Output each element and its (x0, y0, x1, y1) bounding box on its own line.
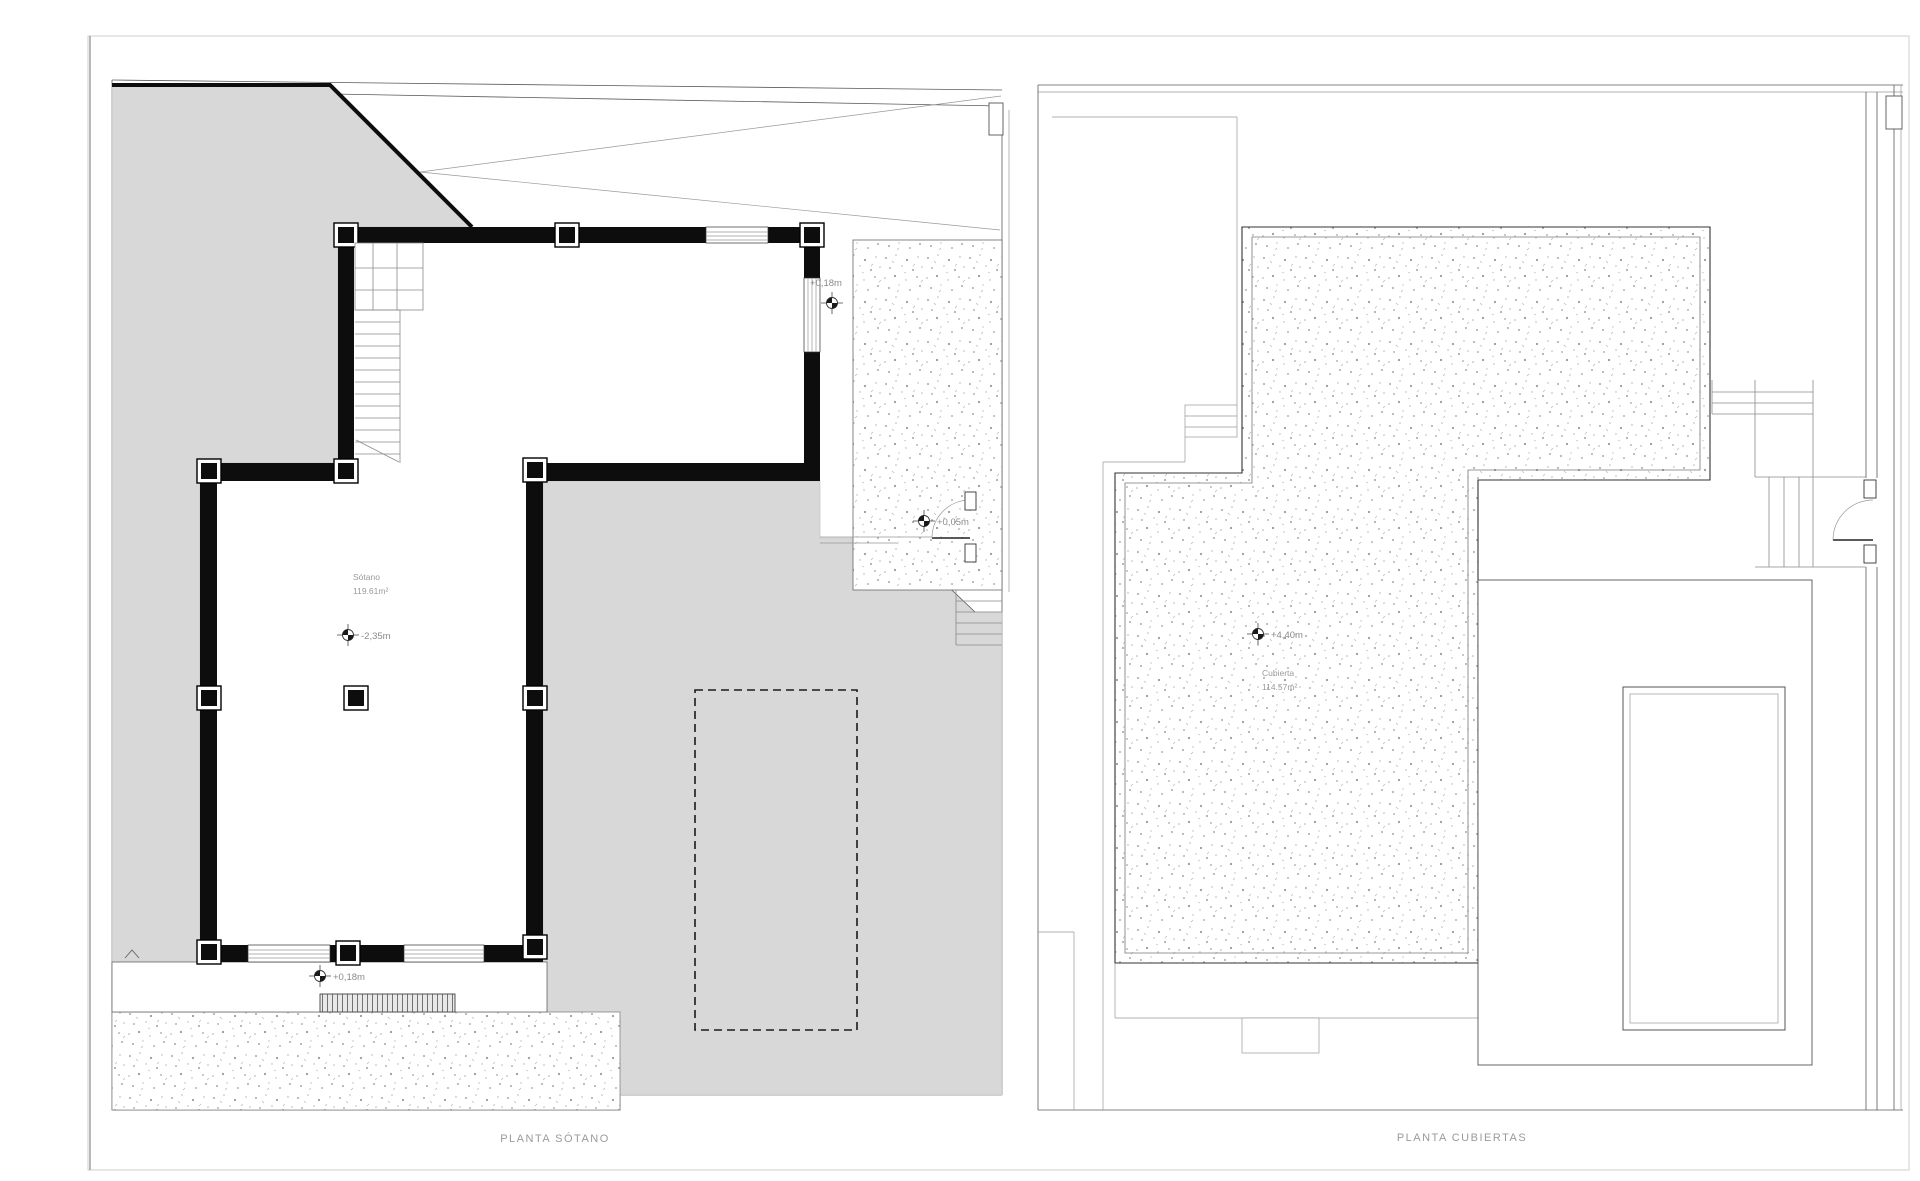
sight-lines (420, 96, 1001, 230)
gravel-bed-right (853, 240, 1002, 590)
level-value: +4,40m (1271, 630, 1303, 641)
roof-eaves-band (1115, 963, 1478, 1053)
level-value: +0,18m (333, 972, 365, 983)
east-boundary-wall (1866, 92, 1902, 1110)
terrain-upper-left (112, 85, 472, 962)
corner-post-marker (989, 103, 1003, 135)
room-name: Cubierta (1262, 668, 1294, 678)
room-area: 119.61m² (353, 586, 388, 596)
plan-title-sotano: PLANTA SÓTANO (500, 1132, 610, 1145)
staircase (355, 243, 423, 463)
roof-door-east (1833, 480, 1876, 563)
room-label-sotano: Sótano 119.61m² (353, 572, 388, 596)
roof-pool (1623, 687, 1785, 1030)
drain-grate (320, 994, 455, 1012)
plan-title-cubiertas: PLANTA CUBIERTAS (1397, 1132, 1527, 1144)
corner-post-marker (1886, 96, 1902, 129)
room-name: Sótano (353, 572, 380, 582)
roof-access-box (1242, 1018, 1319, 1053)
level-value: +0,18m (810, 278, 842, 289)
plan-sheet: +0,18m +0,05m -2,35m +0,18m Sótano 119.6… (0, 0, 1920, 1181)
door-swing-arc (1833, 500, 1873, 540)
plan-sotano: +0,18m +0,05m -2,35m +0,18m Sótano 119.6… (112, 80, 1009, 1145)
level-value: -2,35m (361, 631, 391, 642)
level-value: +0,05m (937, 517, 969, 528)
roof-terrace (1478, 580, 1812, 1065)
level-marker-basement: -2,35m (337, 624, 391, 646)
site-top-line-2 (332, 94, 1002, 106)
interior-pillar (344, 686, 368, 710)
drawing-canvas: +0,18m +0,05m -2,35m +0,18m Sótano 119.6… (0, 0, 1920, 1181)
plan-cubiertas: +4,40m Cubierta 114.57m² PLANTA CUBIERTA… (1038, 85, 1903, 1144)
room-area: 114.57m² (1262, 682, 1297, 692)
roof-stairs-east (1712, 380, 1866, 567)
gravel-bed-bottom (112, 1012, 620, 1110)
